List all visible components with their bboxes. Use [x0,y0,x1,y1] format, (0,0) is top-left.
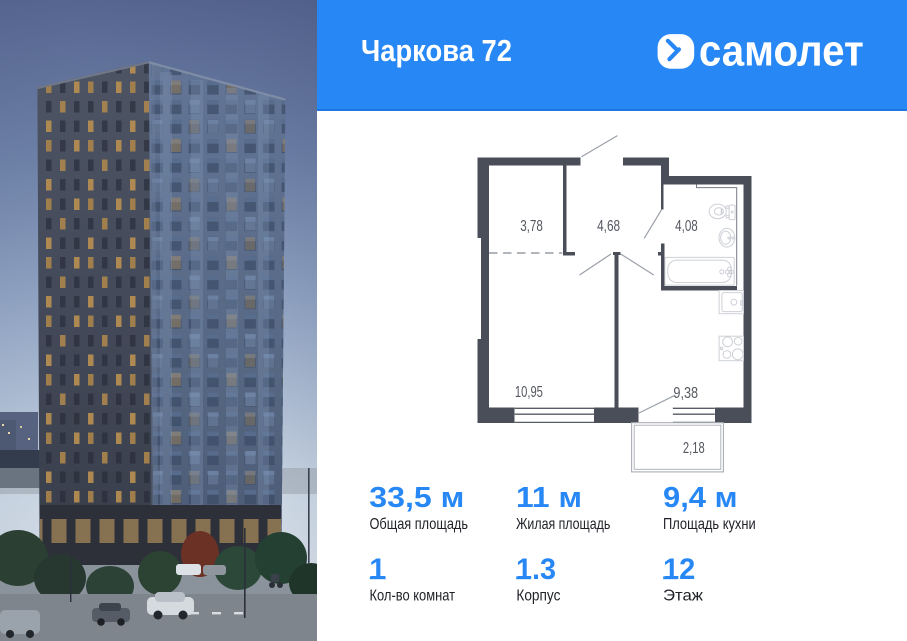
svg-text:Общая площадь: Общая площадь [370,516,469,533]
svg-text:Площадь кухни: Площадь кухни [663,516,756,533]
svg-text:самолет: самолет [699,32,864,74]
svg-text:3,78: 3,78 [520,218,543,235]
svg-text:9,38: 9,38 [673,385,698,402]
svg-text:33,5 м: 33,5 м [369,482,464,514]
svg-text:2,18: 2,18 [683,440,705,457]
svg-text:Корпус: Корпус [516,588,560,605]
svg-text:1.3: 1.3 [516,553,556,586]
svg-text:Жилая площадь: Жилая площадь [516,516,610,533]
svg-text:Кол-во комнат: Кол-во комнат [370,588,456,605]
svg-text:4,68: 4,68 [597,218,620,235]
svg-text:Этаж: Этаж [663,588,703,605]
svg-text:9,4 м: 9,4 м [663,482,738,514]
svg-text:4,08: 4,08 [675,218,698,235]
svg-text:12: 12 [663,553,695,586]
svg-text:11 м: 11 м [516,482,582,514]
svg-text:Чаркова 72: Чаркова 72 [361,33,512,68]
svg-text:10,95: 10,95 [515,384,543,401]
svg-text:1: 1 [369,553,386,586]
